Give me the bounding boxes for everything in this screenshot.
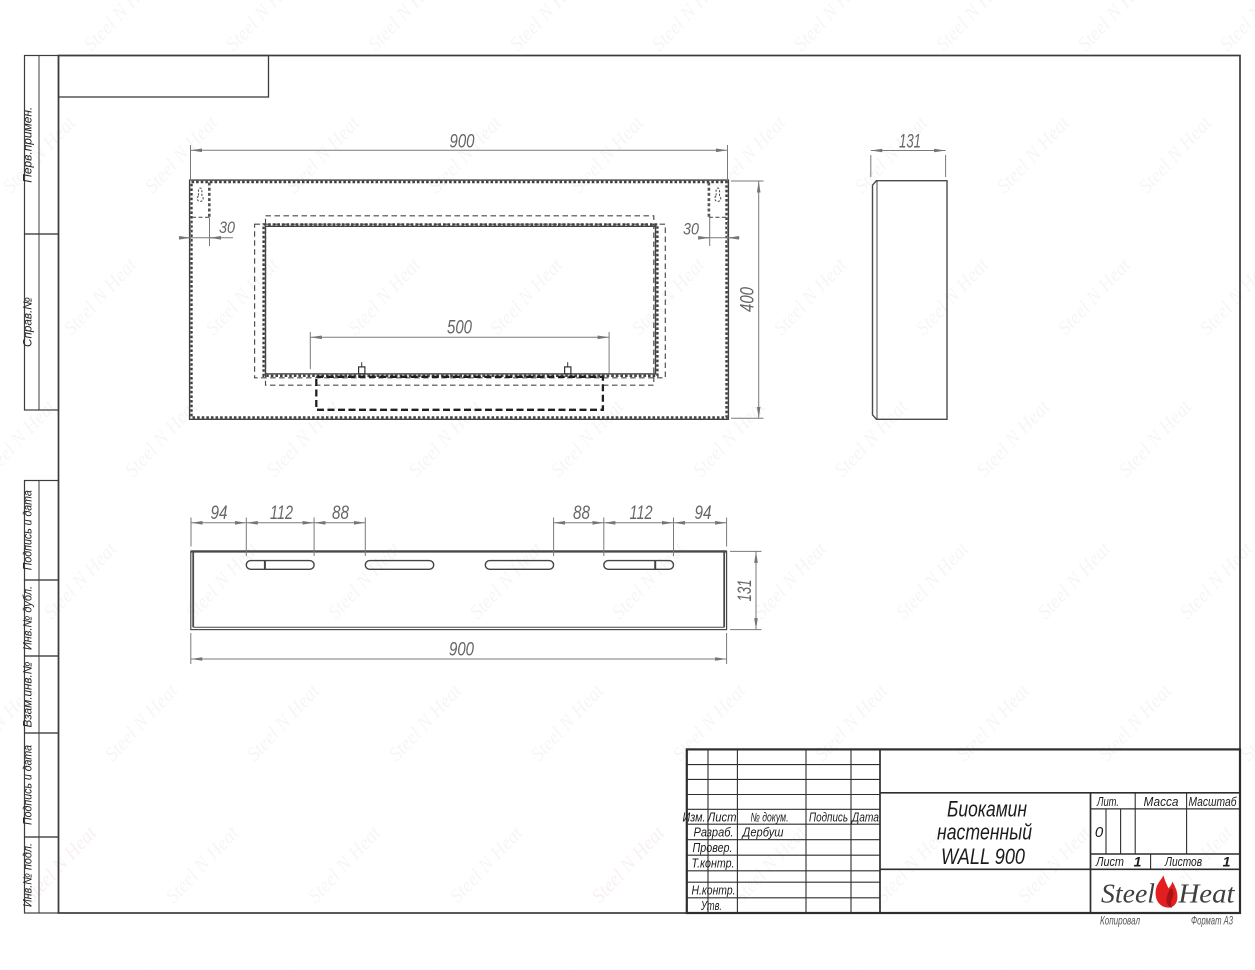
svg-text:Масштаб: Масштаб — [1189, 794, 1238, 809]
svg-text:Steel N Heat: Steel N Heat — [344, 254, 426, 340]
svg-text:Steel N Heat: Steel N Heat — [1216, 0, 1255, 55]
svg-text:Steel N Heat: Steel N Heat — [202, 254, 284, 340]
svg-text:Steel N Heat: Steel N Heat — [527, 680, 609, 766]
svg-text:900: 900 — [450, 131, 475, 153]
svg-text:Steel N Heat: Steel N Heat — [567, 112, 649, 198]
svg-text:Подпись и дата: Подпись и дата — [21, 745, 35, 825]
svg-text:Листов: Листов — [1164, 854, 1202, 869]
svg-text:500: 500 — [447, 317, 472, 339]
svg-text:Steel N Heat: Steel N Heat — [973, 396, 1055, 482]
svg-text:94: 94 — [211, 503, 228, 524]
svg-text:Перв.примен.: Перв.примен. — [21, 107, 35, 183]
svg-text:88: 88 — [573, 503, 590, 524]
svg-text:400: 400 — [737, 287, 759, 312]
svg-text:30: 30 — [219, 218, 235, 237]
svg-text:Steel N Heat: Steel N Heat — [365, 964, 447, 970]
svg-text:0: 0 — [1095, 824, 1104, 841]
svg-text:Разраб.: Разраб. — [694, 825, 734, 839]
svg-text:1: 1 — [1134, 854, 1142, 870]
svg-text:Steel N Heat: Steel N Heat — [790, 0, 872, 55]
svg-text:Справ.№: Справ.№ — [21, 297, 35, 347]
svg-text:Steel N Heat: Steel N Heat — [648, 0, 730, 55]
svg-text:Взам.инв.№: Взам.инв.№ — [21, 662, 35, 728]
svg-text:Steel N Heat: Steel N Heat — [1074, 0, 1156, 55]
svg-text:112: 112 — [630, 503, 653, 524]
svg-text:Формат А3: Формат А3 — [1191, 914, 1233, 928]
svg-text:Steel N Heat: Steel N Heat — [364, 0, 446, 55]
svg-text:Steel N Heat: Steel N Heat — [1095, 680, 1177, 766]
svg-text:Steel N Heat: Steel N Heat — [1217, 964, 1255, 970]
svg-text:Подпись: Подпись — [809, 810, 848, 824]
svg-text:30: 30 — [683, 220, 699, 239]
svg-text:Steel N Heat: Steel N Heat — [689, 396, 771, 482]
svg-text:Steel N Heat: Steel N Heat — [932, 0, 1014, 55]
svg-text:Steel N Heat: Steel N Heat — [0, 964, 20, 970]
svg-text:Инв.№ дубл.: Инв.№ дубл. — [21, 586, 35, 650]
svg-text:Steel N Heat: Steel N Heat — [385, 680, 467, 766]
svg-text:Steel N Heat: Steel N Heat — [831, 396, 913, 482]
svg-text:Steel N Heat: Steel N Heat — [60, 254, 142, 340]
svg-text:Инв.№ подл.: Инв.№ подл. — [21, 843, 35, 907]
svg-text:Steel N Heat: Steel N Heat — [101, 680, 183, 766]
svg-text:Steel N Heat: Steel N Heat — [953, 680, 1035, 766]
svg-text:Steel N Heat: Steel N Heat — [851, 112, 933, 198]
svg-text:Steel N Heat: Steel N Heat — [628, 254, 710, 340]
svg-text:Steel N Heat: Steel N Heat — [80, 0, 162, 55]
svg-text:Steel N Heat: Steel N Heat — [1115, 396, 1197, 482]
svg-text:Steel N Heat: Steel N Heat — [0, 396, 60, 482]
svg-text:Лист: Лист — [1095, 854, 1124, 869]
svg-text:Дербуш: Дербуш — [741, 825, 784, 839]
svg-text:Лит.: Лит. — [1096, 794, 1119, 809]
svg-text:Дата: Дата — [850, 810, 879, 824]
svg-text:Steel N Heat: Steel N Heat — [506, 0, 588, 55]
svg-text:Провер.: Провер. — [693, 841, 733, 855]
svg-text:Steel N Heat: Steel N Heat — [709, 112, 791, 198]
svg-text:94: 94 — [695, 503, 712, 524]
svg-text:Steel N Heat: Steel N Heat — [40, 538, 122, 624]
svg-text:Steel N Heat: Steel N Heat — [750, 538, 832, 624]
svg-text:Н.контр.: Н.контр. — [692, 883, 736, 897]
svg-text:Steel N Heat: Steel N Heat — [933, 964, 1015, 970]
svg-text:88: 88 — [332, 503, 349, 524]
svg-text:Steel N Heat: Steel N Heat — [507, 964, 589, 970]
svg-text:Steel N Heat: Steel N Heat — [892, 538, 974, 624]
svg-text:Steel N Heat: Steel N Heat — [243, 680, 325, 766]
svg-text:112: 112 — [270, 503, 293, 524]
svg-text:Steel N Heat: Steel N Heat — [304, 822, 386, 908]
svg-text:Steel N Heat: Steel N Heat — [223, 964, 305, 970]
svg-text:Steel N Heat: Steel N Heat — [446, 822, 528, 908]
svg-text:900: 900 — [449, 639, 474, 661]
svg-text:Steel N Heat: Steel N Heat — [81, 964, 163, 970]
svg-text:131: 131 — [899, 131, 921, 153]
svg-text:Steel N Heat: Steel N Heat — [1135, 112, 1217, 198]
svg-text:Steel N Heat: Steel N Heat — [0, 112, 80, 198]
svg-text:Steel N Heat: Steel N Heat — [1075, 964, 1157, 970]
svg-text:Лист: Лист — [707, 810, 737, 824]
svg-text:Steel: Steel — [1101, 879, 1155, 909]
svg-text:Steel N Heat: Steel N Heat — [649, 964, 731, 970]
svg-text:Steel N Heat: Steel N Heat — [162, 822, 244, 908]
svg-text:Steel N Heat: Steel N Heat — [283, 112, 365, 198]
svg-text:Steel N Heat: Steel N Heat — [770, 254, 852, 340]
svg-text:Steel N Heat: Steel N Heat — [1034, 538, 1116, 624]
svg-text:Heat: Heat — [1177, 879, 1236, 909]
svg-text:Утв.: Утв. — [700, 899, 722, 913]
svg-text:Steel N Heat: Steel N Heat — [912, 254, 994, 340]
svg-text:WALL 900: WALL 900 — [941, 844, 1025, 869]
svg-text:Steel N Heat: Steel N Heat — [486, 254, 568, 340]
svg-text:Масса: Масса — [1144, 794, 1179, 809]
svg-text:1: 1 — [1223, 854, 1231, 870]
svg-text:Т.контр.: Т.контр. — [692, 856, 735, 870]
svg-text:Steel N Heat: Steel N Heat — [0, 0, 19, 55]
svg-text:Steel N Heat: Steel N Heat — [1054, 254, 1136, 340]
svg-text:Изм.: Изм. — [683, 810, 706, 824]
svg-text:№ докум.: № докум. — [751, 810, 789, 824]
svg-text:Steel N Heat: Steel N Heat — [1196, 254, 1255, 340]
svg-text:131: 131 — [734, 580, 756, 602]
svg-text:Копировал: Копировал — [1100, 914, 1140, 928]
svg-text:Steel N Heat: Steel N Heat — [425, 112, 507, 198]
svg-text:Steel N Heat: Steel N Heat — [222, 0, 304, 55]
svg-text:настенный: настенный — [937, 820, 1032, 845]
svg-text:Подпись и дата: Подпись и дата — [21, 490, 35, 570]
svg-text:Steel N Heat: Steel N Heat — [993, 112, 1075, 198]
svg-text:Биокамин: Биокамин — [947, 797, 1027, 822]
svg-text:Steel N Heat: Steel N Heat — [1176, 538, 1255, 624]
svg-text:Steel N Heat: Steel N Heat — [669, 680, 751, 766]
svg-text:Steel N Heat: Steel N Heat — [588, 822, 670, 908]
svg-text:Steel N Heat: Steel N Heat — [791, 964, 873, 970]
